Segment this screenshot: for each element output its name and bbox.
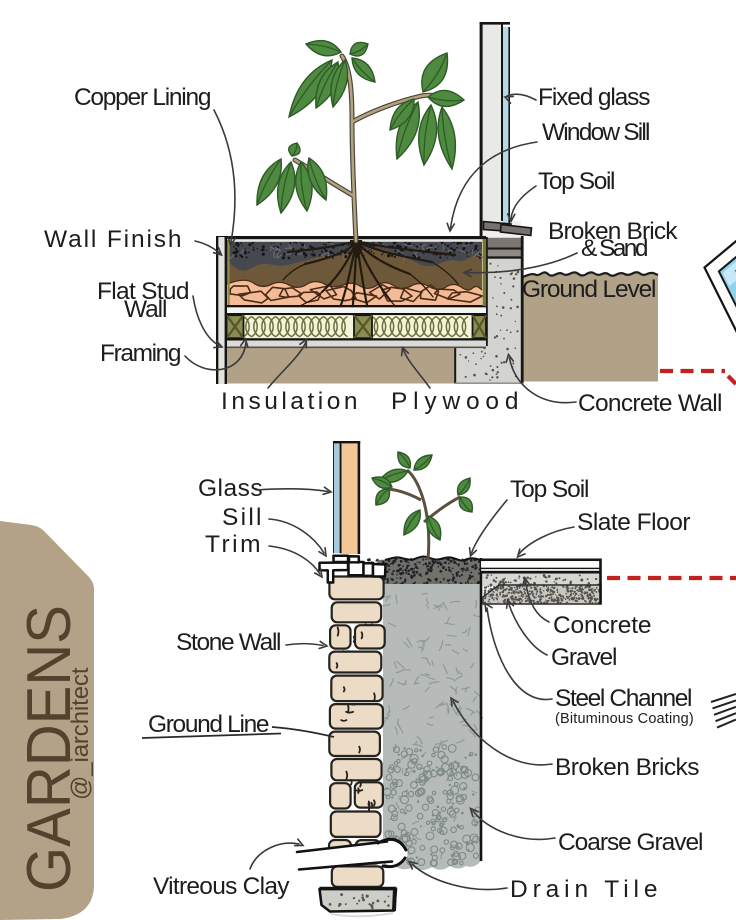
svg-text:Window Sill: Window Sill [542,119,651,146]
svg-text:Trim: Trim [205,531,261,558]
svg-text:Concrete Wall: Concrete Wall [578,390,723,417]
svg-text:Gravel: Gravel [551,644,618,671]
svg-text:Coarse Gravel: Coarse Gravel [558,829,704,856]
svg-text:Stone Wall: Stone Wall [176,629,282,656]
svg-text:Ground Line: Ground Line [148,711,270,738]
svg-text:Broken Bricks: Broken Bricks [555,754,700,781]
svg-text:Concrete: Concrete [553,612,652,639]
svg-text:Slate Floor: Slate Floor [577,509,691,536]
svg-text:Wall Finish: Wall Finish [44,226,182,253]
svg-text:Top Soil: Top Soil [538,168,616,195]
svg-text:@_iarchitect: @_iarchitect [67,667,94,800]
svg-text:Sill: Sill [222,504,262,531]
svg-text:Glass: Glass [198,475,263,502]
svg-text:Vitreous Clay: Vitreous Clay [153,873,290,900]
svg-text:Ground Level: Ground Level [522,276,657,303]
svg-text:Copper Lining: Copper Lining [74,84,212,111]
svg-text:Top Soil: Top Soil [510,476,590,503]
svg-text:(Bituminous Coating): (Bituminous Coating) [555,711,694,727]
svg-text:Wall: Wall [124,296,168,323]
svg-text:& Sand: & Sand [581,235,649,262]
svg-text:Steel Channel: Steel Channel [555,685,693,712]
svg-text:Fixed glass: Fixed glass [538,84,651,111]
svg-text:Framing: Framing [100,340,182,367]
svg-text:Insulation: Insulation [221,388,358,415]
svg-text:Drain Tile: Drain Tile [510,876,658,903]
